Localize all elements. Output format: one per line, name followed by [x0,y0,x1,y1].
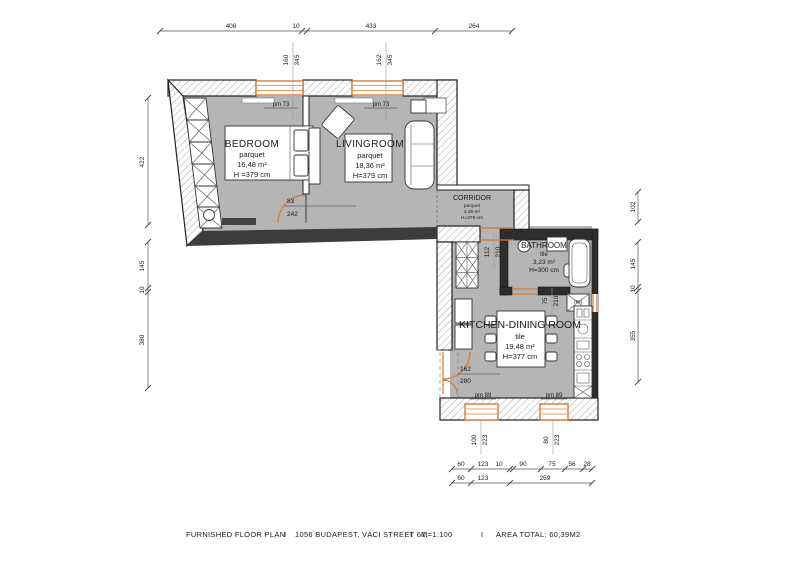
dim-b1-56: 56 [568,461,576,468]
wall-kitchen-left [437,242,452,350]
dim-b1-10: 10 [495,461,503,468]
livingroom-height: H=379 cm [353,171,387,180]
balcony-door-w: 162 [460,366,471,373]
bedroom-door-w: 83 [287,198,295,205]
floor-plan-canvas: 408 10 433 264 422 145 10 380 102 145 10… [0,0,800,565]
dim-left-380: 380 [139,334,146,345]
kitchen-window-left-parapet: pm 89 [475,393,492,399]
bathtub [569,239,590,287]
kitchen-window-right-h: 223 [554,434,561,445]
dim-right-102: 102 [630,201,637,212]
livingroom-window-w: 162 [376,54,383,65]
footer-title: FURNISHED FLOOR PLAN [186,530,285,539]
bathroom-floor: tile [540,252,548,258]
bedroom-window-w: 160 [283,54,290,65]
entrance-door-label: (90) [574,299,583,304]
corridor-name: CORRIDOR [453,195,491,202]
dim-left-422: 422 [139,156,146,167]
bathroom-door-h: 210 [553,295,560,306]
dim-b1-90: 90 [519,461,527,468]
bedroom-window [256,81,303,95]
footer-address: 1056 BUDAPEST, VÁCI STREET 67. [295,530,428,539]
footer-scale: M=1:100 [421,530,453,539]
bedroom-windowsill [242,98,274,103]
dim-b2-123: 123 [478,475,489,482]
pillow [294,155,308,176]
livingroom-windowsill [335,98,373,103]
balcony-door-h: 280 [460,378,471,385]
dim-b1-123: 123 [478,461,489,468]
wall-livingroom-right [437,80,457,188]
wall-corridor-top [437,185,529,190]
dim-b2-60: 60 [457,475,465,482]
dim-top-433: 433 [366,23,377,30]
corridor-door-w: 112 [484,246,491,257]
kitchen-area: 19,48 m² [505,342,535,351]
kitchen-height: H=377 cm [503,352,537,361]
dim-b1-28: 28 [583,461,591,468]
footer-sep1: I [284,530,286,539]
radiator [222,218,256,225]
kitchen-window-left [465,404,498,420]
bedroom-area: 16,48 m² [237,160,267,169]
livingroom-window-h: 345 [387,54,394,65]
kitchen-floor: tile [515,332,525,341]
dim-left-10: 10 [139,286,146,294]
wall-corridor-kitchen [437,226,480,242]
kitchen-window-left-w: 100 [471,434,478,445]
corridor-height: H=379 cm [461,215,483,221]
wall-right-outer [592,229,598,398]
bathroom-door-w: 75 [542,297,549,305]
bedroom-window-parapet: pm 73 [273,102,290,108]
bedroom-window-h: 345 [294,54,301,65]
dim-top-10: 10 [292,23,300,30]
dim-right-145: 145 [630,258,637,269]
footer-area-total: AREA TOTAL: 60,39M2 [496,530,581,539]
dim-left-145: 145 [139,260,146,271]
floor-plan-page: 408 10 433 264 422 145 10 380 102 145 10… [0,0,800,565]
corridor-door-h: 210 [495,246,502,257]
bedroom-floor: parquet [239,150,265,159]
livingroom-window-parapet: pm 73 [373,102,390,108]
dim-right-10: 10 [630,285,637,293]
footer-sep2: I [410,530,412,539]
wall-kitchen-bottom [440,398,598,420]
dim-b2-259: 259 [540,475,551,482]
footer-sep3: I [481,530,483,539]
livingroom-corner-sill [424,98,446,113]
dim-b1-75: 75 [548,461,556,468]
pillow [294,130,308,151]
kitchen-window-right-w: 80 [543,436,550,444]
dim-top-408: 408 [226,23,237,30]
wall-top-mid [303,80,352,96]
kitchen-window-right [540,404,568,420]
bedroom-door-h: 242 [287,211,298,218]
livingroom-area: 18,36 m² [355,161,385,170]
floor-lamp [204,210,215,221]
footer-caption: FURNISHED FLOOR PLAN I 1056 BUDAPEST, VÁ… [186,530,581,539]
wall-corridor-right [514,190,529,230]
dim-right-355: 355 [630,330,637,341]
corridor-area: 3,36 m² [464,209,481,215]
livingroom-window [352,81,403,95]
corridor-floor: parquet [464,203,481,209]
kitchen-name: KITCHEN-DINING ROOM [459,319,581,331]
livingroom-cabinet [309,128,320,184]
bathroom-height: H=300 cm [529,267,559,274]
bathroom-area: 3,23 m² [533,259,556,266]
bedroom-name: BEDROOM [225,139,279,150]
wall-bathroom-bottom-a [500,287,512,295]
dim-top-264: 264 [469,23,480,30]
kitchen-window-left-h: 223 [482,434,489,445]
dim-b1-60: 60 [457,461,465,468]
kitchen-window-right-parapet: pm 89 [546,393,563,399]
side-table [411,100,426,113]
wall-bathroom-bottom-b [538,287,570,295]
livingroom-name: LIVINGROOM [336,139,404,150]
sofa [405,121,434,189]
bedroom-height: H =379 cm [234,170,270,179]
livingroom-floor: parquet [357,151,383,160]
corridor-closet [456,242,478,288]
bathroom-name: BATHROOM [521,241,567,250]
